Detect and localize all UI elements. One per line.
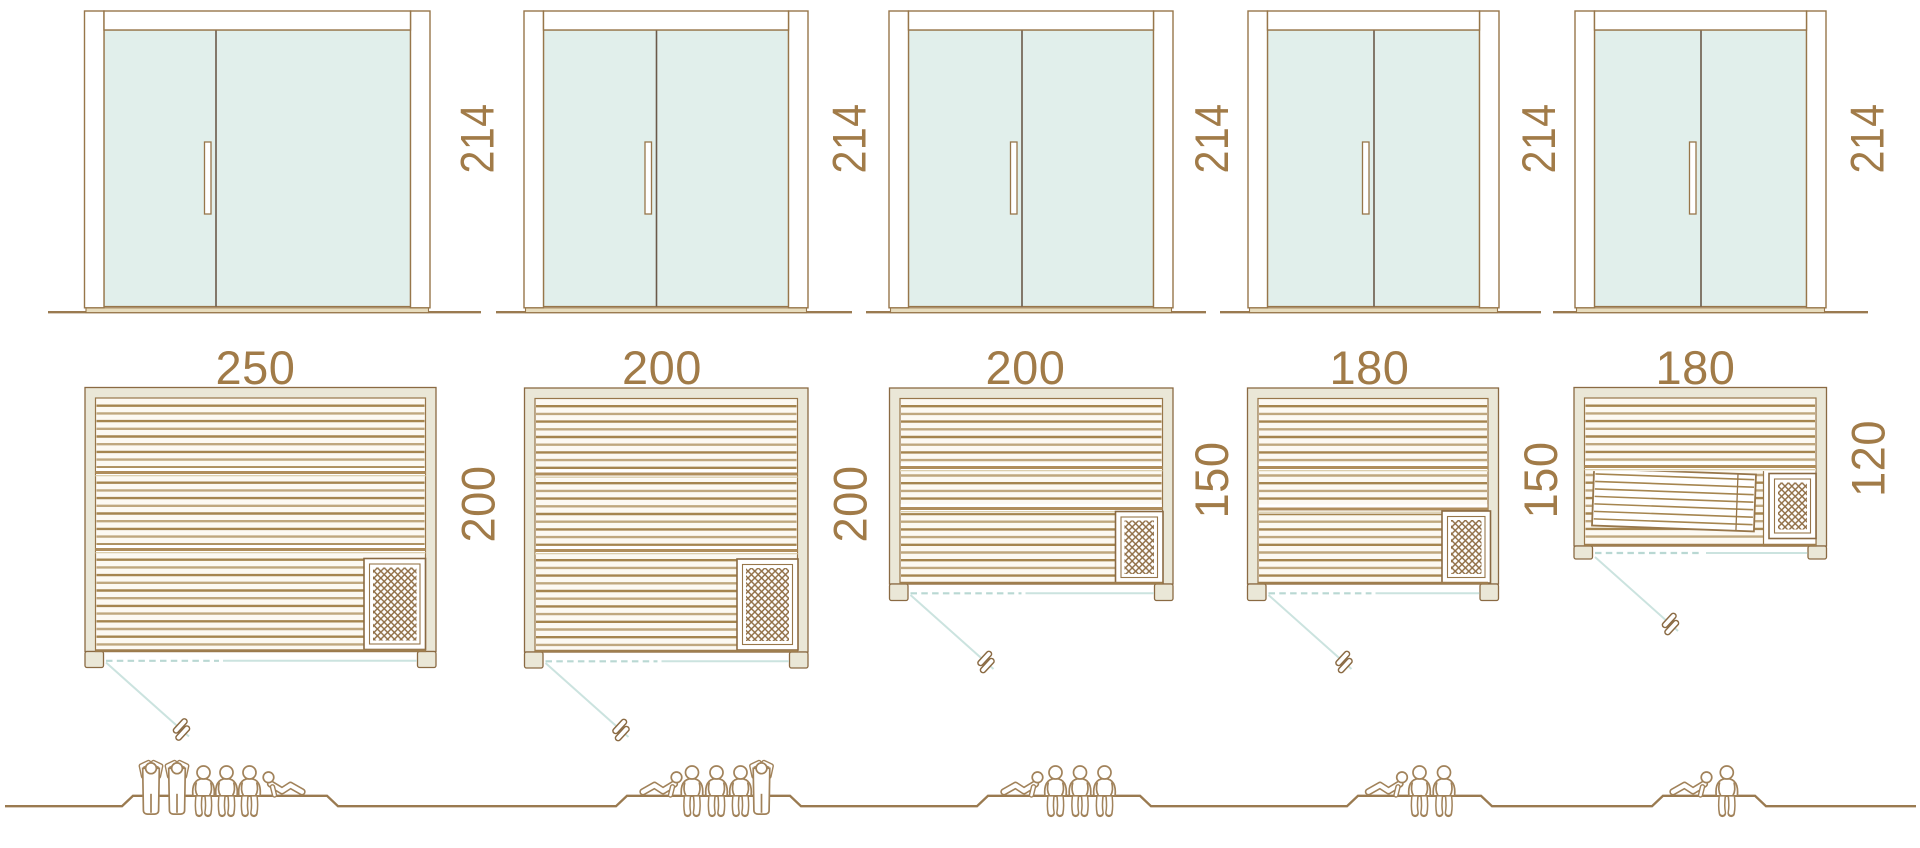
svg-text:200: 200 [452, 466, 505, 543]
svg-text:180: 180 [1330, 341, 1410, 394]
svg-text:214: 214 [1512, 104, 1565, 174]
svg-text:200: 200 [622, 341, 702, 394]
svg-text:180: 180 [1656, 341, 1736, 394]
svg-text:214: 214 [451, 104, 504, 174]
svg-text:150: 150 [1185, 442, 1238, 519]
svg-text:214: 214 [1841, 104, 1894, 174]
svg-text:200: 200 [824, 466, 877, 543]
svg-text:214: 214 [823, 104, 876, 174]
svg-text:214: 214 [1185, 104, 1238, 174]
svg-text:120: 120 [1842, 420, 1895, 497]
svg-text:250: 250 [216, 341, 296, 394]
svg-text:150: 150 [1514, 442, 1567, 519]
svg-text:200: 200 [986, 341, 1066, 394]
